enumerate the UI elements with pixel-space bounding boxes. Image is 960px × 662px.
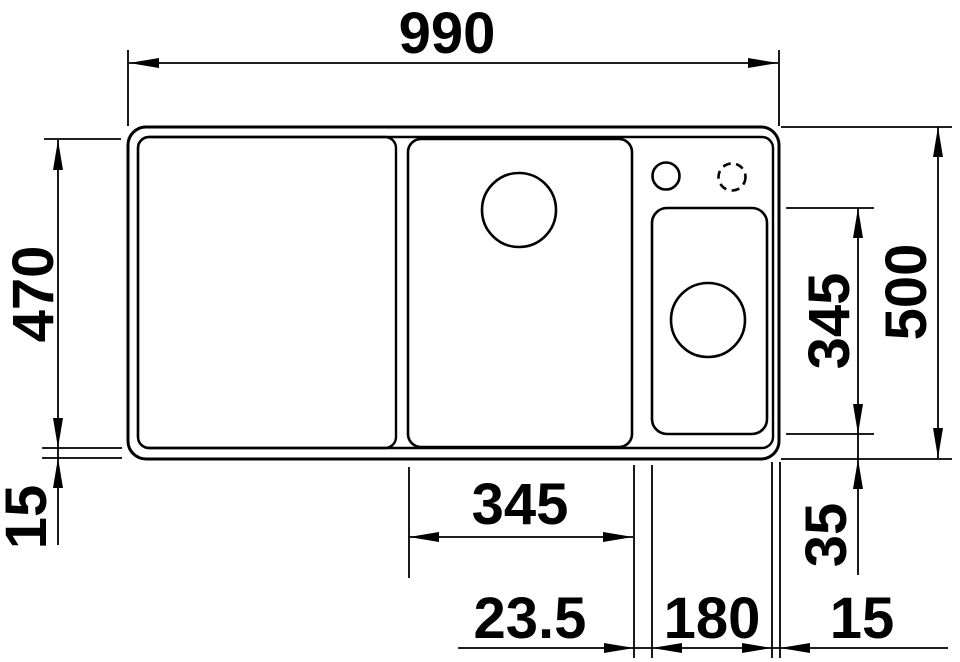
dim-bottom-rim: 15	[0, 458, 63, 549]
accessory-bowl-drain-hole	[671, 283, 745, 357]
dim-label-overall-width: 990	[399, 1, 496, 66]
main-bowl	[408, 139, 632, 447]
dim-label-bottom-rim: 15	[0, 485, 59, 550]
dim-label-main-bowl-width: 345	[472, 472, 569, 537]
dim-label-accessory-bowl-offset: 35	[794, 503, 859, 568]
dim-label-accessory-bowl-depth: 345	[797, 273, 862, 370]
dim-label-inner-depth: 470	[1, 246, 66, 343]
arrowhead	[853, 459, 863, 489]
arrowhead	[129, 58, 159, 68]
sink-body	[128, 127, 779, 459]
arrowhead	[933, 127, 943, 157]
tap-hole-optional-dashed	[719, 164, 746, 191]
arrowhead	[748, 58, 778, 68]
arrowhead	[604, 643, 634, 653]
arrowhead	[53, 140, 63, 170]
accessory-bowl	[652, 208, 767, 434]
technical-drawing-canvas: 990 470 15 500 345 35	[0, 0, 960, 662]
sink-technical-drawing: 990 470 15 500 345 35	[0, 0, 960, 662]
arrowhead	[53, 458, 63, 488]
main-bowl-drain-hole	[482, 173, 556, 247]
dim-label-overall-depth: 500	[874, 244, 939, 341]
dim-overall-width: 990	[128, 1, 779, 126]
arrowhead	[853, 404, 863, 434]
arrowhead	[933, 428, 943, 458]
dim-label-accessory-bowl-width: 180	[664, 586, 761, 651]
dim-label-divider-width: 23.5	[474, 586, 587, 651]
arrowhead	[409, 532, 439, 542]
dim-accessory-bowl-offset: 35	[794, 459, 863, 567]
tap-hole	[653, 163, 680, 190]
dim-label-side-rim: 15	[830, 586, 895, 651]
arrowhead	[780, 643, 810, 653]
dim-main-bowl-width: 345	[409, 467, 633, 578]
arrowhead	[53, 418, 63, 448]
arrowhead	[603, 532, 633, 542]
arrowhead	[853, 208, 863, 238]
drainboard	[138, 137, 396, 448]
